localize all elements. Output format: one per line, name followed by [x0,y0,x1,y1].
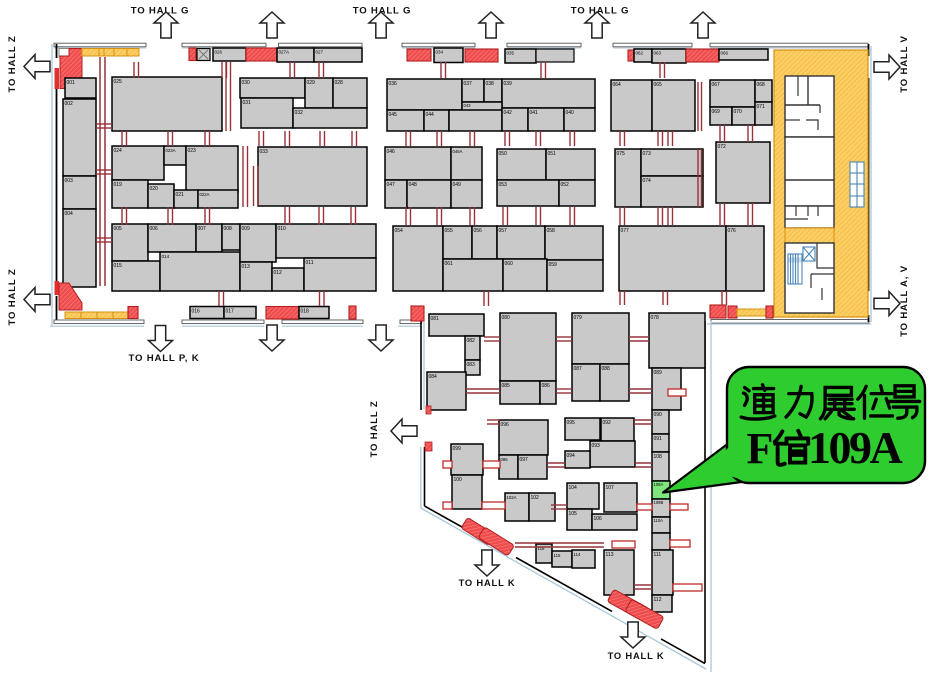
svg-text:096: 096 [501,422,510,428]
svg-text:111: 111 [654,552,662,558]
svg-text:031: 031 [243,100,252,106]
svg-text:017: 017 [226,309,235,315]
svg-text:067: 067 [712,82,721,88]
svg-text:084: 084 [429,374,438,380]
svg-text:TO HALL Z: TO HALL Z [369,401,380,458]
svg-text:041: 041 [530,110,539,116]
svg-text:TO HALL V: TO HALL V [899,35,910,92]
svg-text:TO HALL Z: TO HALL Z [7,36,18,93]
svg-text:010: 010 [278,226,287,232]
svg-text:096: 096 [501,457,509,462]
svg-text:097: 097 [520,457,529,463]
svg-text:043: 043 [464,103,472,108]
svg-text:089: 089 [654,370,663,376]
svg-text:030: 030 [242,80,251,86]
svg-text:087: 087 [574,366,583,372]
svg-text:019: 019 [114,182,123,188]
svg-text:002: 002 [65,101,74,107]
svg-text:012: 012 [274,270,283,276]
svg-text:TO HALL K: TO HALL K [608,650,665,661]
svg-text:040: 040 [566,110,575,116]
svg-text:068: 068 [757,82,766,88]
svg-text:053: 053 [499,182,508,188]
svg-text:076: 076 [728,228,737,234]
svg-text:009: 009 [242,226,251,232]
svg-text:105: 105 [569,511,578,517]
svg-text:020: 020 [150,186,159,192]
svg-text:035: 035 [507,51,515,56]
svg-text:091: 091 [654,436,663,442]
svg-text:023A: 023A [166,148,176,153]
svg-text:045: 045 [389,112,398,118]
svg-text:015: 015 [114,263,123,269]
svg-text:TO HALL K: TO HALL K [459,577,516,588]
svg-text:048: 048 [409,182,418,188]
svg-text:029: 029 [307,80,316,86]
svg-text:115: 115 [554,553,561,558]
svg-text:065: 065 [654,82,663,88]
svg-text:001: 001 [67,80,76,86]
svg-text:058: 058 [547,228,556,234]
svg-text:064: 064 [613,82,622,88]
svg-text:079: 079 [574,315,583,321]
svg-text:112: 112 [654,597,662,603]
svg-text:102A: 102A [507,495,517,500]
svg-text:052: 052 [561,182,570,188]
svg-text:021: 021 [176,192,185,198]
svg-text:050: 050 [499,151,508,157]
svg-text:078: 078 [651,315,660,321]
svg-text:054: 054 [395,228,404,234]
svg-text:055: 055 [445,228,454,234]
svg-text:025: 025 [114,79,123,85]
svg-text:024: 024 [114,148,123,154]
svg-text:069: 069 [712,109,721,115]
svg-text:037: 037 [464,81,473,87]
svg-text:005: 005 [114,226,123,232]
svg-text:026: 026 [215,50,223,55]
svg-text:036: 036 [389,81,398,87]
svg-text:014: 014 [162,254,170,259]
svg-text:077: 077 [621,228,630,234]
svg-text:003: 003 [65,178,74,184]
svg-text:062: 062 [636,51,644,56]
svg-text:107: 107 [606,485,615,491]
svg-text:082: 082 [467,338,476,344]
svg-text:072: 072 [718,144,727,150]
svg-text:023: 023 [188,148,197,154]
svg-text:102: 102 [531,495,540,501]
svg-text:TO HALL A, V: TO HALL A, V [899,265,910,337]
svg-text:093: 093 [592,443,601,449]
svg-text:085: 085 [502,383,511,389]
svg-text:092: 092 [603,420,612,426]
svg-text:071: 071 [757,104,766,110]
svg-text:049: 049 [453,182,462,188]
svg-text:027A: 027A [279,50,290,55]
svg-text:073: 073 [643,151,652,157]
svg-text:008: 008 [224,226,233,232]
svg-text:044: 044 [426,112,435,118]
svg-text:081: 081 [431,316,440,322]
svg-text:109A: 109A [654,482,664,487]
svg-text:004: 004 [65,211,74,217]
svg-text:022A: 022A [200,192,210,197]
svg-text:110A: 110A [654,518,664,523]
svg-text:027: 027 [316,50,324,55]
svg-text:104: 104 [569,485,578,491]
svg-text:TO HALL Z: TO HALL Z [7,269,18,326]
svg-text:099: 099 [453,446,462,452]
svg-text:106: 106 [594,516,603,522]
svg-text:090: 090 [654,412,663,418]
svg-text:039: 039 [504,81,513,87]
svg-text:094: 094 [567,453,576,459]
svg-text:113: 113 [606,552,614,558]
svg-text:033: 033 [260,149,269,155]
svg-text:018: 018 [301,309,310,315]
svg-text:013: 013 [242,264,251,270]
svg-text:095: 095 [567,420,576,426]
svg-text:046A: 046A [453,149,463,154]
svg-text:063: 063 [654,51,662,56]
svg-text:086: 086 [542,383,551,389]
svg-text:011: 011 [306,260,314,266]
svg-text:028: 028 [335,80,344,86]
svg-text:057: 057 [499,228,508,234]
svg-text:109A: 109A [808,422,903,473]
svg-text:060: 060 [505,261,514,267]
svg-text:114: 114 [574,552,581,557]
svg-text:109B: 109B [654,500,664,505]
svg-text:100: 100 [454,477,463,483]
svg-text:034: 034 [436,50,444,55]
svg-text:056: 056 [474,228,483,234]
svg-text:080: 080 [502,315,511,321]
svg-text:051: 051 [548,151,557,157]
svg-text:016: 016 [192,309,201,315]
svg-text:083: 083 [467,362,476,368]
svg-text:042: 042 [504,110,513,116]
svg-text:038: 038 [486,81,495,87]
svg-text:032: 032 [295,110,304,116]
svg-text:108: 108 [654,454,663,460]
svg-text:TO HALL G: TO HALL G [131,6,190,17]
svg-text:061: 061 [445,261,454,267]
svg-text:F: F [747,424,774,473]
svg-text:075: 075 [617,151,626,157]
svg-text:088: 088 [602,366,611,372]
svg-text:006: 006 [150,226,159,232]
svg-text:007: 007 [198,226,207,232]
svg-text:070: 070 [734,109,743,115]
svg-text:046: 046 [387,149,396,155]
svg-text:047: 047 [387,182,396,188]
svg-text:074: 074 [643,178,652,184]
svg-text:066: 066 [721,51,729,56]
svg-text:TO HALL P, K: TO HALL P, K [129,353,200,364]
svg-text:059: 059 [549,262,558,268]
